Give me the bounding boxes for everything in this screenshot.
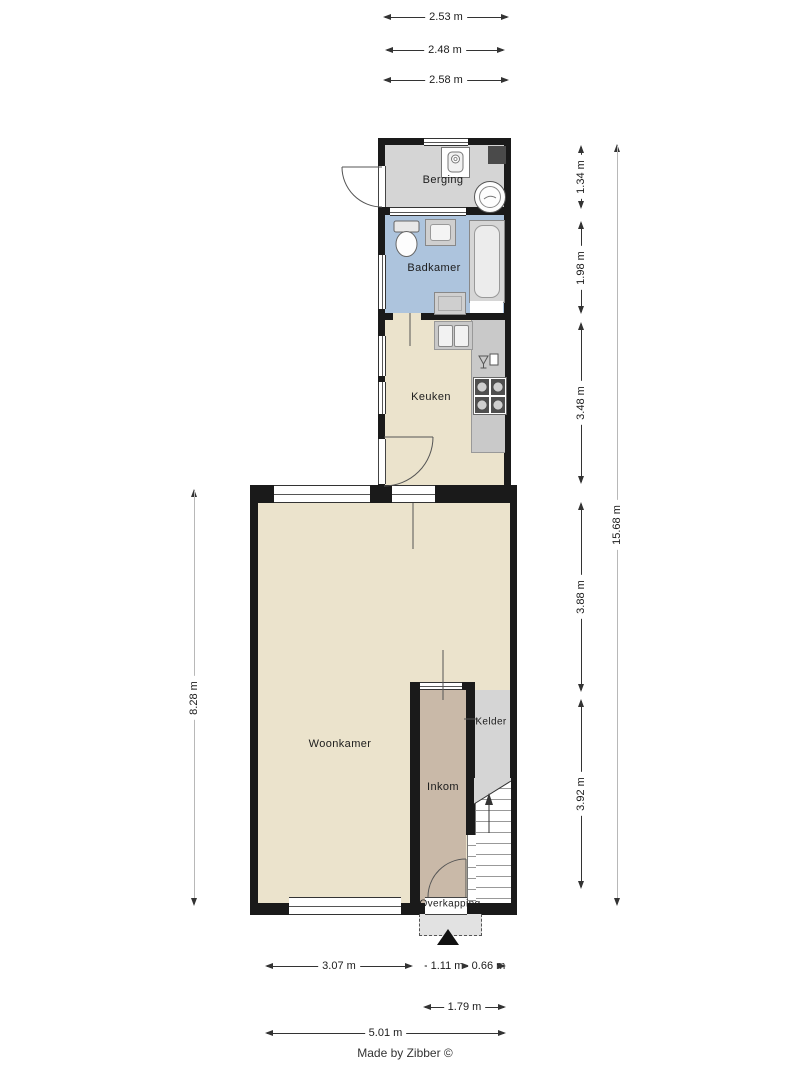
dimension-right-3: 3.48 m	[574, 322, 588, 484]
dimension-label: 2.48 m	[424, 44, 466, 56]
credit-text: Made by Zibber ©	[0, 1046, 810, 1060]
toilet-icon	[392, 220, 421, 258]
dimension-label: 3.07 m	[318, 960, 360, 972]
dimension-right-2: 1.98 m	[574, 221, 588, 314]
inkom-floor	[420, 690, 466, 903]
dimension-label: 2.58 m	[425, 74, 467, 86]
shower-tray	[470, 301, 503, 313]
boiler-icon	[474, 181, 506, 213]
dimension-bottom-5: 5.01 m	[265, 1026, 506, 1040]
room-label-keuken: Keuken	[411, 391, 451, 403]
keuken-woonkamer-opening	[392, 485, 435, 503]
washing-machine-glyph	[442, 148, 469, 177]
dimension-label: 3.88 m	[575, 575, 587, 619]
dimension-label: 1.11 m	[427, 960, 468, 972]
dimension-right-4: 3.88 m	[574, 502, 588, 692]
room-label-woonkamer: Woonkamer	[309, 738, 372, 750]
north-arrow-icon	[437, 929, 459, 945]
dimension-bottom-4: 1.79 m	[423, 1000, 506, 1014]
dimension-bottom-3: 0.66 m	[471, 959, 506, 973]
berging-top-window	[424, 138, 468, 146]
chimney-block	[488, 146, 506, 164]
window-mullion	[289, 906, 401, 907]
kelder-floor	[475, 690, 510, 790]
dimension-top-3: 2.58 m	[383, 73, 509, 87]
dimension-left-total: 8.28 m	[187, 489, 201, 906]
burner	[475, 379, 489, 395]
sink-basin	[438, 325, 453, 347]
window-mullion	[274, 494, 370, 495]
badkamer-window	[378, 255, 386, 309]
dimension-right-5: 3.92 m	[574, 699, 588, 889]
floorplan-canvas: 2.53 m 2.48 m 2.58 m 1.34 m 1.98 m 3.48 …	[0, 0, 810, 1080]
kelder-stairs-extension	[467, 835, 476, 903]
dimension-label: 3.48 m	[575, 381, 587, 425]
dimension-top-2: 2.48 m	[385, 43, 505, 57]
dimension-label: 8.28 m	[188, 676, 200, 720]
dimension-label: 1.79 m	[444, 1001, 486, 1013]
bathtub-icon	[469, 220, 505, 303]
window-mullion	[392, 494, 435, 495]
room-label-badkamer: Badkamer	[407, 262, 460, 274]
keuken-window-1	[378, 336, 386, 376]
badkamer-keuken-opening	[393, 313, 421, 320]
keuken-door-opening	[378, 439, 386, 484]
woonkamer-window	[274, 485, 370, 503]
tap-icon	[477, 351, 501, 371]
woonkamer-bottom-window	[289, 897, 401, 915]
stove-icon	[473, 377, 507, 415]
window-mullion	[420, 686, 462, 687]
dimension-label: 1.98 m	[575, 246, 587, 290]
room-label-overkapping: Overkapping	[419, 899, 480, 910]
dimension-bottom-1: 3.07 m	[265, 959, 413, 973]
burner	[491, 397, 505, 413]
dimension-bottom-2: 1.11 m	[424, 959, 470, 973]
bathroom-sink-icon	[425, 219, 456, 246]
tap-glyph	[477, 351, 501, 371]
toilet-glyph	[392, 220, 421, 258]
inkom-left-wall	[410, 682, 420, 903]
window-mullion	[424, 142, 468, 143]
room-label-inkom: Inkom	[427, 781, 459, 793]
dimension-label: 3.92 m	[575, 772, 587, 816]
inkom-kelder-wall	[466, 690, 475, 835]
burner	[491, 379, 505, 395]
boiler-glyph	[475, 182, 505, 212]
dimension-label: 0.66 m	[468, 960, 510, 972]
dimension-label: 5.01 m	[365, 1027, 407, 1039]
kelder-stairs	[475, 778, 511, 903]
dimension-label: 2.53 m	[425, 11, 467, 23]
dimension-label: 15.68 m	[611, 500, 623, 550]
window-mullion	[382, 382, 383, 414]
room-label-kelder: Kelder	[475, 717, 506, 728]
berging-door-opening	[378, 166, 386, 207]
window-mullion	[382, 336, 383, 376]
window-mullion	[390, 212, 466, 213]
sink-basin	[454, 325, 469, 347]
room-label-berging: Berging	[423, 174, 464, 186]
berging-badkamer-window	[390, 207, 466, 216]
burner	[475, 397, 489, 413]
dimension-right-total: 15.68 m	[610, 144, 624, 906]
keuken-window-2	[378, 382, 386, 414]
bathroom-cabinet	[434, 292, 466, 315]
dimension-label: 1.34 m	[575, 155, 587, 199]
berging-door-arc	[342, 167, 382, 207]
inkom-glass-door	[420, 682, 462, 690]
kitchen-sink-icon	[434, 321, 473, 350]
dimension-top-1: 2.53 m	[383, 10, 509, 24]
window-mullion	[382, 255, 383, 309]
dimension-right-1: 1.34 m	[574, 145, 588, 209]
